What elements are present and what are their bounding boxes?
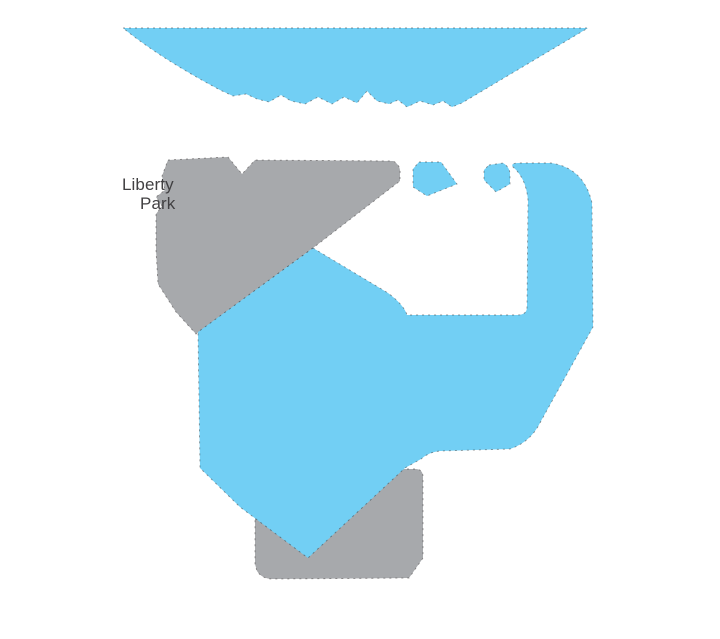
pond-small-left [413,162,457,196]
map-illustration [0,0,720,639]
lake-top [123,28,588,107]
map-canvas: Liberty Park [0,0,720,639]
map-label-line1: Liberty [122,175,174,194]
pond-small-right [484,163,510,192]
map-label-line2: Park [140,194,175,213]
